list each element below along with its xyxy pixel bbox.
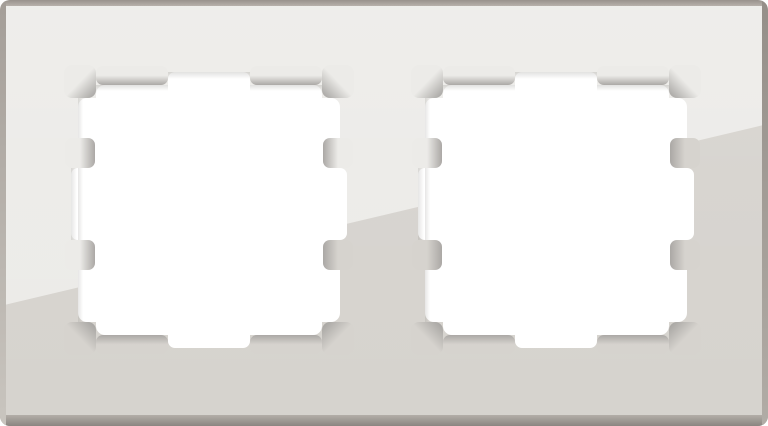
cut-edge-shadow	[96, 85, 168, 91]
frame-edge-right	[762, 0, 768, 426]
opening-cutout-white	[425, 98, 687, 322]
opening-cutout-white	[78, 98, 340, 322]
bottom-edge-tab-right	[597, 335, 669, 354]
bottom-edge-tab-left	[96, 335, 168, 354]
cut-edge-shadow	[597, 85, 669, 91]
left-edge-tab-upper	[412, 138, 442, 168]
right-edge-tab-lower	[323, 240, 353, 270]
left-edge-tab-upper	[65, 138, 95, 168]
cut-edge-shadow	[250, 85, 322, 91]
bottom-edge-tab-right	[250, 335, 322, 354]
left-edge-tab-lower	[65, 240, 95, 270]
cut-edge-shadow	[443, 85, 515, 91]
corner-tab-top-left	[64, 65, 96, 98]
bottom-edge-tab-left	[443, 335, 515, 354]
cut-edge-shadow	[515, 72, 597, 79]
right-edge-tab-lower	[670, 240, 700, 270]
top-edge-tab-left	[443, 66, 515, 85]
top-edge-tab-right	[250, 66, 322, 85]
right-edge-tab-upper	[323, 138, 353, 168]
frame-edge-left	[0, 0, 6, 426]
opening-right	[411, 65, 701, 355]
right-edge-tab-upper	[670, 138, 700, 168]
product-photo-glass-frame	[0, 0, 768, 426]
corner-tab-bottom-right	[322, 322, 354, 355]
cut-edge-shadow	[78, 98, 83, 322]
corner-tab-top-right	[322, 65, 354, 98]
frame-edge-top	[0, 0, 768, 6]
corner-tab-bottom-right	[669, 322, 701, 355]
cut-edge-shadow	[418, 168, 424, 240]
opening-left	[64, 65, 354, 355]
top-edge-tab-left	[96, 66, 168, 85]
corner-tab-top-left	[411, 65, 443, 98]
top-edge-tab-right	[597, 66, 669, 85]
cut-edge-shadow	[71, 168, 77, 240]
corner-tab-bottom-left	[64, 322, 96, 355]
corner-tab-top-right	[669, 65, 701, 98]
glass-plate	[0, 0, 768, 426]
cut-edge-shadow	[168, 72, 250, 79]
frame-edge-bottom	[0, 415, 768, 426]
left-edge-tab-lower	[412, 240, 442, 270]
cut-edge-shadow	[425, 98, 430, 322]
glass-frame-image	[0, 0, 768, 426]
corner-tab-bottom-left	[411, 322, 443, 355]
